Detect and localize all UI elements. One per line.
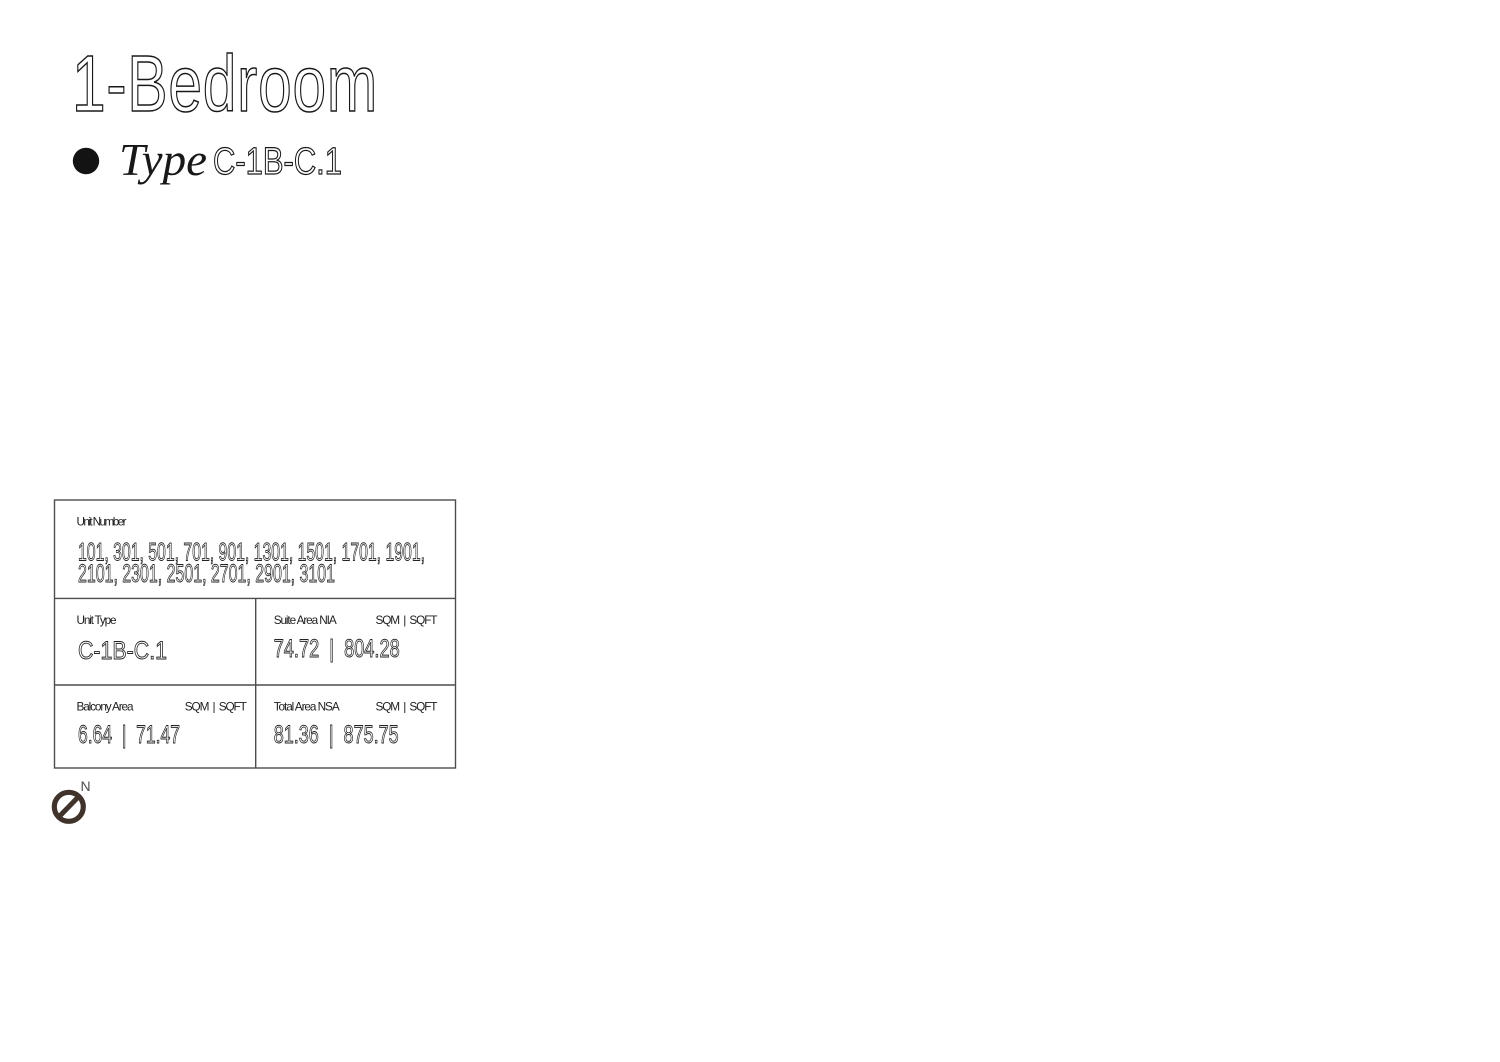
svg-text:SQM | SQFT: SQM | SQFT <box>185 700 247 714</box>
svg-text:C-1B-C.1: C-1B-C.1 <box>78 637 167 665</box>
svg-text:Unit Type: Unit Type <box>77 613 117 627</box>
svg-text:6.64 | 71.47: 6.64 | 71.47 <box>78 721 180 749</box>
svg-text:N: N <box>81 778 91 794</box>
svg-text:Type: Type <box>119 134 207 185</box>
svg-text:Suite Area NIA: Suite Area NIA <box>274 613 337 627</box>
svg-text:2101, 2301, 2501, 2701, 2901,: 2101, 2301, 2501, 2701, 2901, 3101 <box>78 560 335 588</box>
svg-text:81.36 | 875.75: 81.36 | 875.75 <box>274 721 399 749</box>
svg-text:SQM | SQFT: SQM | SQFT <box>376 613 438 627</box>
svg-text:1-Bedroom: 1-Bedroom <box>72 39 378 128</box>
svg-text:SQM | SQFT: SQM | SQFT <box>376 700 438 714</box>
svg-text:Unit Number: Unit Number <box>77 515 127 529</box>
svg-text:Balcony Area: Balcony Area <box>77 700 134 714</box>
svg-text:C-1B-C.1: C-1B-C.1 <box>213 141 342 183</box>
svg-text:Total Area NSA: Total Area NSA <box>274 700 340 714</box>
svg-text:74.72 | 804.28: 74.72 | 804.28 <box>274 635 400 663</box>
